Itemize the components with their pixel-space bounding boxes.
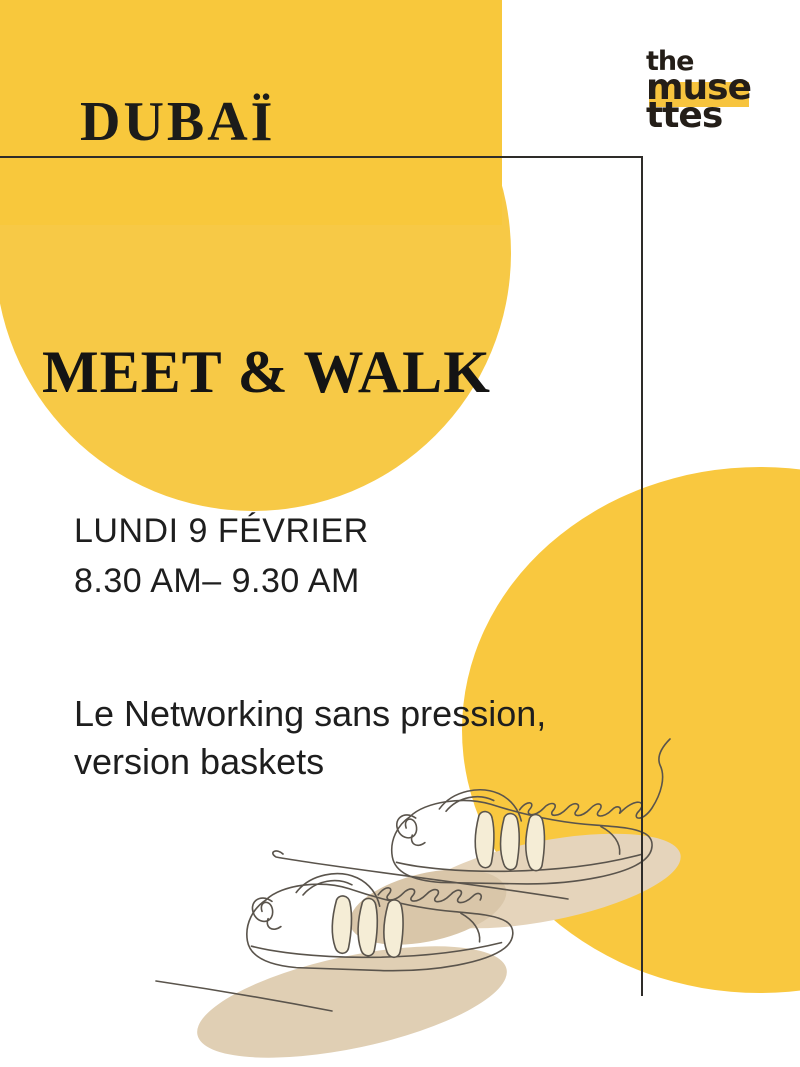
event-date: LUNDI 9 FÉVRIER [74,506,369,556]
event-time: 8.30 AM– 9.30 AM [74,556,369,606]
event-description-line-2: version baskets [74,738,546,786]
brand-logo: the muse ttes [646,49,751,130]
event-datetime: LUNDI 9 FÉVRIER 8.30 AM– 9.30 AM [74,506,369,606]
frame-line-horizontal [0,156,643,158]
poster-canvas: { "poster": { "location": "DUBAÏ", "titl… [0,0,800,1067]
logo-line-3: ttes [646,102,751,130]
event-description: Le Networking sans pression, version bas… [74,690,546,786]
event-title: MEET & WALK [42,342,491,402]
shadow-blob-bottom [188,924,516,1067]
event-description-line-1: Le Networking sans pression, [74,690,546,738]
location-title: DUBAÏ [80,94,275,150]
frame-line-vertical [641,156,643,996]
lace-trail-line [620,739,670,818]
